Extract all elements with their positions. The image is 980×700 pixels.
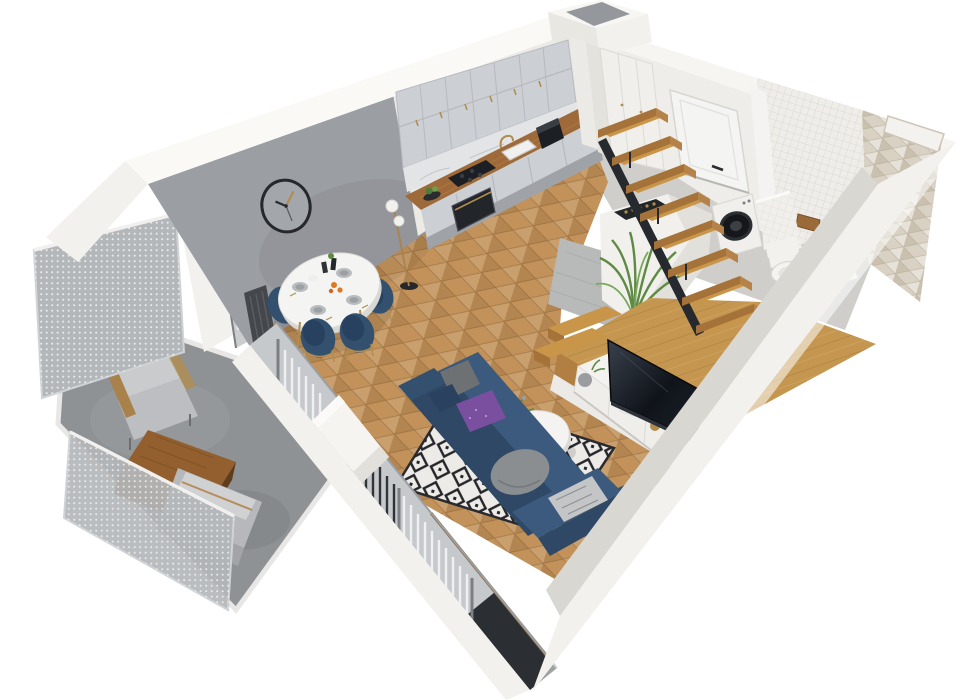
floorplan-stage — [0, 0, 980, 700]
apartment-render — [0, 0, 980, 700]
